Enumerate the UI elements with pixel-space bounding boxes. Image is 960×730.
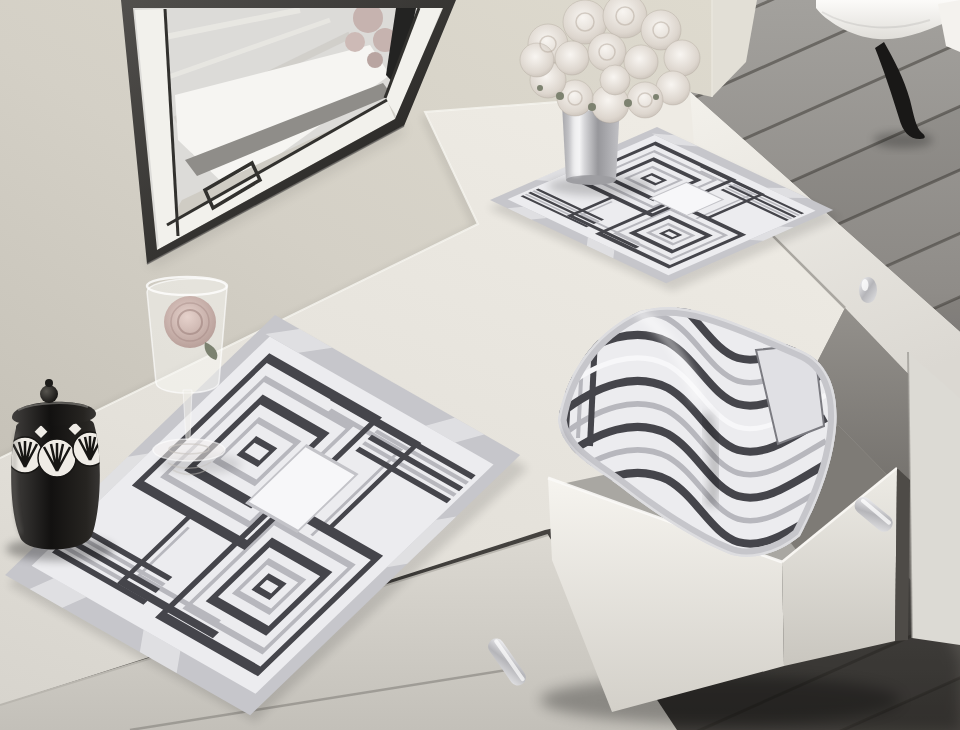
photo-canvas bbox=[0, 0, 960, 730]
rose bbox=[603, 0, 647, 38]
leaf bbox=[556, 92, 564, 100]
table-leg-strip bbox=[908, 352, 960, 645]
reflected-rose bbox=[367, 52, 383, 68]
rose bbox=[555, 41, 589, 75]
reflected-rose bbox=[345, 32, 365, 52]
leaf bbox=[624, 99, 632, 107]
leaf bbox=[537, 85, 543, 91]
leaf bbox=[588, 103, 596, 111]
leaf bbox=[653, 94, 659, 100]
rose bbox=[520, 43, 554, 77]
glass-foot bbox=[153, 439, 225, 461]
scene-svg bbox=[0, 0, 960, 730]
rose bbox=[600, 65, 630, 95]
stool-leg-shadow bbox=[873, 132, 933, 148]
knob-body bbox=[859, 277, 877, 303]
drawer-front-side-gap bbox=[895, 468, 910, 641]
knob-highlight bbox=[862, 279, 869, 291]
rose bbox=[588, 33, 626, 71]
pink-rose bbox=[164, 296, 216, 348]
jar-knob bbox=[40, 385, 58, 403]
rose bbox=[664, 40, 700, 76]
side-drawer-knob bbox=[859, 277, 877, 303]
rose bbox=[627, 82, 663, 118]
vase-highlight bbox=[572, 108, 580, 176]
jar-knob-tip bbox=[45, 379, 53, 387]
palmette bbox=[38, 439, 76, 477]
vase-base bbox=[566, 175, 616, 185]
drawer-floor-shadow bbox=[540, 676, 900, 724]
